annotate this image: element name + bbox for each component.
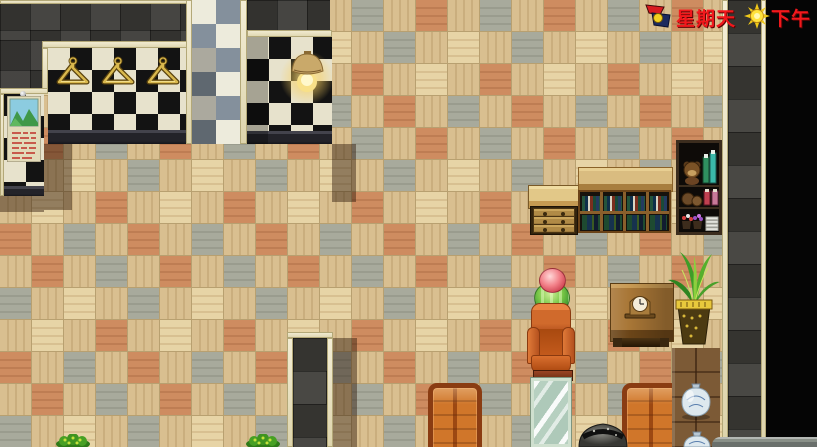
wall-lamp[interactable]	[276, 42, 336, 104]
bookshelf-top	[578, 167, 673, 192]
floor-shadow	[332, 144, 356, 202]
hanger-icon[interactable]	[59, 58, 87, 82]
display-cabinet[interactable]	[676, 140, 722, 235]
floor-shadow	[0, 196, 44, 212]
table-legs	[613, 338, 669, 347]
stone-wall	[0, 40, 44, 90]
game-viewport: 星期天 下午	[0, 0, 817, 447]
baseboard	[48, 130, 186, 144]
armchair-seat	[537, 329, 563, 355]
wall-trim	[240, 0, 247, 144]
wall-trim	[247, 30, 332, 37]
floor-bush[interactable]	[55, 434, 91, 447]
gray-ledge	[712, 437, 817, 447]
wall-trim	[0, 94, 4, 196]
porcelain-vase[interactable]	[679, 380, 713, 420]
stone-wall	[293, 338, 327, 447]
flags-icon	[644, 2, 674, 30]
wall-trim	[42, 41, 188, 48]
hud-day-label: 星期天	[676, 4, 736, 31]
floor-bush[interactable]	[245, 434, 281, 447]
mantel-clock[interactable]	[624, 289, 656, 319]
bookshelf-body	[578, 190, 671, 233]
bookshelf[interactable]	[578, 167, 671, 233]
stone-wall	[247, 0, 330, 31]
wall-trim	[327, 338, 333, 447]
baseboard	[4, 186, 44, 196]
stone-wall-column	[728, 0, 761, 440]
poster[interactable]	[7, 96, 41, 162]
dresser-body	[530, 206, 578, 235]
hanger-icon[interactable]	[149, 58, 177, 82]
void-black	[766, 0, 817, 447]
wall-trim	[0, 0, 188, 4]
cabinet-items	[679, 143, 719, 232]
sun-icon	[744, 3, 770, 29]
wall-shadow	[192, 48, 216, 144]
floor-shadow	[44, 144, 72, 210]
porcelain-vase[interactable]	[681, 430, 713, 447]
topiary-flower	[539, 268, 566, 293]
armchair[interactable]	[527, 303, 573, 373]
potted-palm[interactable]	[666, 246, 722, 348]
wall-shadow	[247, 37, 268, 144]
side-table[interactable]	[610, 283, 672, 347]
stone-urn[interactable]	[578, 417, 628, 447]
hanger-icon[interactable]	[104, 58, 132, 82]
stone-wall	[0, 0, 188, 44]
leather-sofa[interactable]	[428, 383, 482, 447]
coat-hangers[interactable]	[48, 48, 186, 131]
floor-shadow	[333, 338, 357, 447]
dresser[interactable]	[528, 185, 578, 233]
standing-mirror[interactable]	[531, 378, 571, 447]
hud-time-label: 下午	[771, 4, 811, 31]
